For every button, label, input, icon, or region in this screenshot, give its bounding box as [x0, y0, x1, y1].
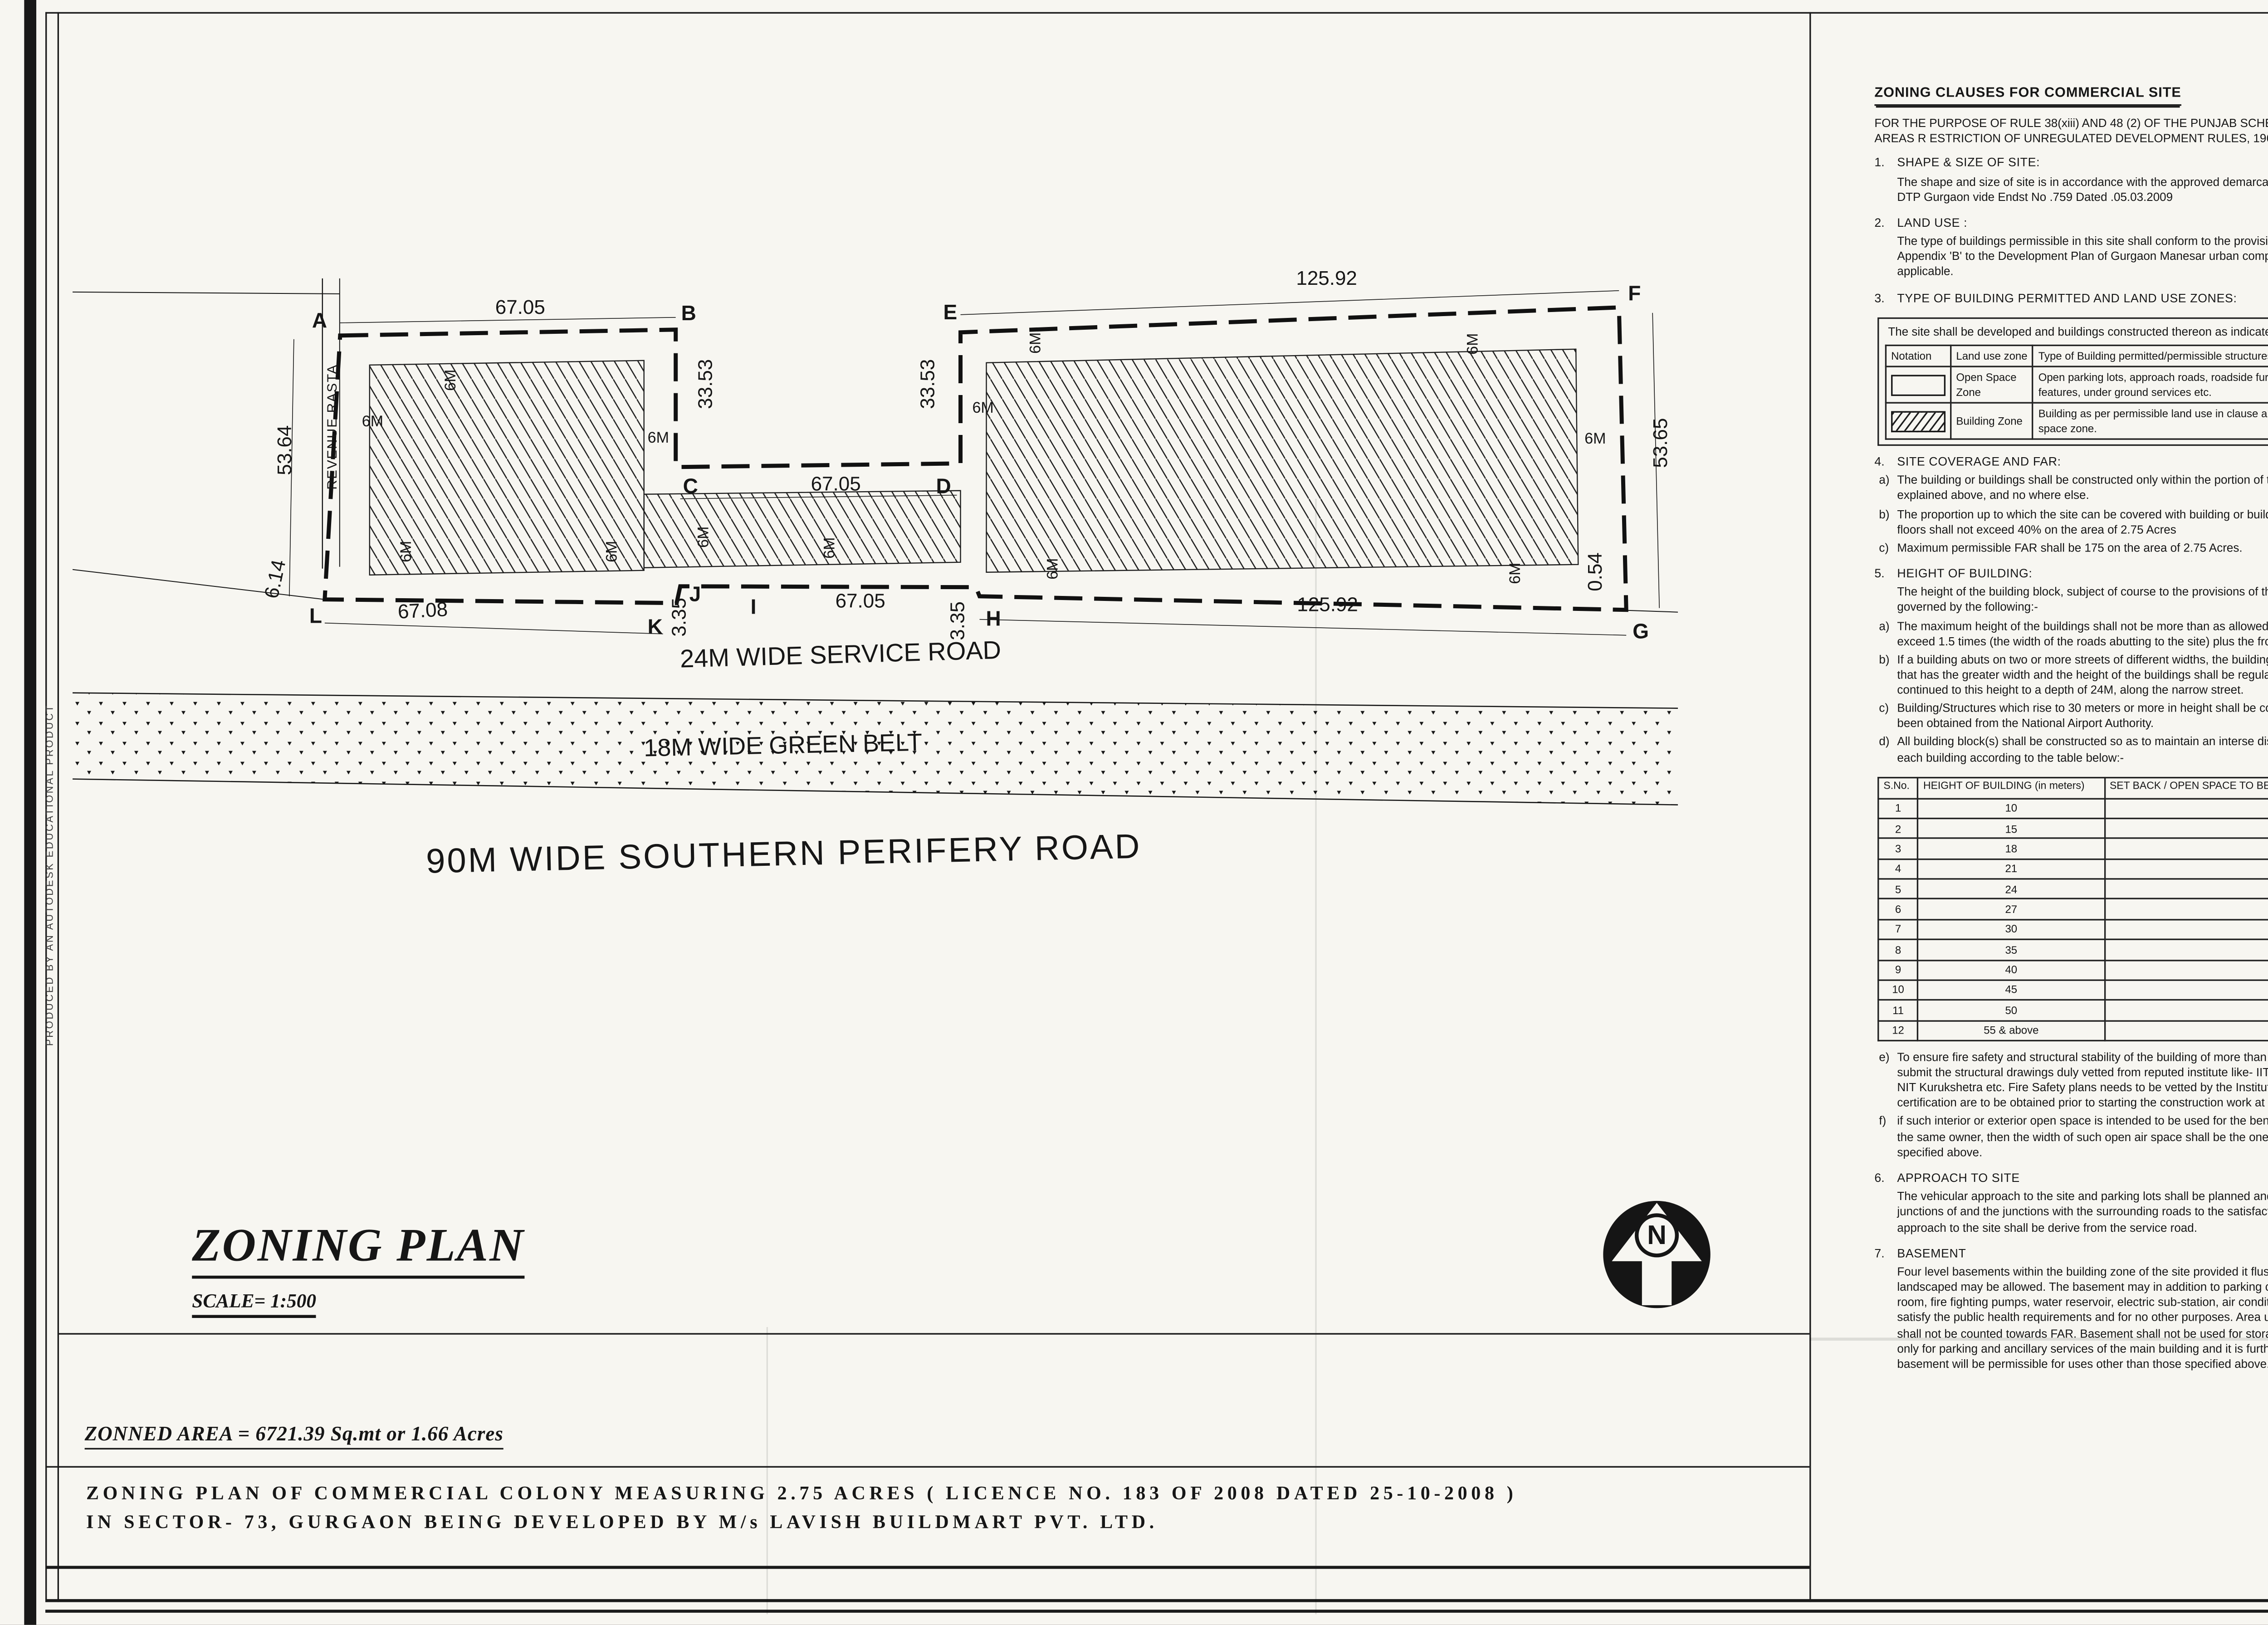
table-row: 73010: [1878, 919, 2268, 940]
table-row: 94012: [1878, 960, 2268, 980]
scan-edge-strip: [24, 0, 36, 1625]
divider-plan-clauses: [1809, 12, 1812, 1602]
clause-paragraph: c)Building/Structures which rise to 30 m…: [1874, 702, 2268, 732]
clause-paragraph-label: c): [1879, 541, 1889, 556]
clause-paragraph-text: Four level basements within the building…: [1897, 1265, 2268, 1370]
clause-paragraph-label: e): [1879, 1050, 1889, 1066]
table-row: 2155: [1878, 819, 2268, 839]
table-cell: 10: [1918, 798, 2104, 819]
service-road-label: 24M WIDE SERVICE ROAD: [679, 635, 1002, 673]
table-header-row: S.No.HEIGHT OF BUILDING (in meters)SET B…: [1878, 777, 2268, 799]
plan-setback-label: 6M: [973, 399, 994, 416]
clause-heading: 5.HEIGHT OF BUILDING:: [1874, 567, 2268, 583]
plan-corner-label-E: E: [943, 300, 958, 324]
table-cell: 8: [1878, 940, 1918, 960]
plan-dimension: 53.64: [274, 425, 296, 475]
north-letter: N: [1647, 1220, 1667, 1250]
building-zone-hatch-right: [987, 349, 1579, 572]
clause-title: HEIGHT OF BUILDING:: [1897, 567, 2032, 581]
table-cell: 6: [1878, 899, 1918, 920]
clause-paragraph: e)To ensure fire safety and structural s…: [1874, 1050, 2268, 1112]
plan-setback-label: 6M: [1584, 430, 1606, 447]
table-cell: 8: [2104, 879, 2268, 899]
clause-paragraph-text: Building/Structures which rise to 30 met…: [1897, 702, 2268, 731]
fold-crease: [767, 1327, 768, 1614]
table-header-row: NotationLand use zoneType of Building pe…: [1886, 346, 2268, 367]
table-cell: 9: [2104, 899, 2268, 920]
clause-paragraph-text: The proportion up to which the site can …: [1897, 507, 2268, 536]
clause-number: 2.: [1874, 216, 1884, 232]
table-cell: 3: [2104, 798, 2268, 819]
plan-corner-label-F: F: [1628, 281, 1641, 305]
plan-setback-label: 6M: [648, 429, 669, 446]
clause-paragraph-text: All building block(s) shall be construct…: [1897, 735, 2268, 764]
clause-paragraph: The type of buildings permissible in thi…: [1874, 234, 2268, 280]
plan-setback-label: 6M: [1044, 558, 1061, 580]
table-cell: 45: [1918, 980, 2104, 1000]
plan-dimension: 0.54: [1584, 552, 1606, 591]
plan-setback-label: 6M: [695, 527, 712, 548]
zoning-plan-sheet: PRODUCED BY AN AUTODESK EDUCATIONAL PROD…: [0, 0, 2268, 1625]
plan-corner-label-H: H: [986, 607, 1001, 630]
notation-swatch: [1891, 375, 1945, 396]
clause-paragraph: The height of the building block, subjec…: [1874, 586, 2268, 616]
table-row: 1103: [1878, 798, 2268, 819]
type-cell: Building as per permissible land use in …: [2033, 403, 2268, 439]
table-row: 6279: [1878, 899, 2268, 920]
table-row: Open Space ZoneOpen parking lots, approa…: [1886, 367, 2268, 403]
notation-swatch: [1891, 410, 1945, 432]
clause-title: SHAPE & SIZE OF SITE:: [1897, 156, 2040, 170]
clause-paragraph-text: To ensure fire safety and structural sta…: [1897, 1050, 2268, 1110]
plan-setback-label: 6M: [1506, 562, 1524, 584]
clause-number: 4.: [1874, 455, 1884, 471]
plan-dimension: 67.05: [495, 296, 545, 318]
clause-paragraph: b)The proportion up to which the site ca…: [1874, 507, 2268, 537]
land-use-box: The site shall be developed and building…: [1877, 317, 2268, 446]
plan-dimension: 33.53: [917, 359, 939, 409]
clause-paragraph-text: The height of the building block, subjec…: [1897, 586, 2268, 615]
plan-setback-label: 6M: [397, 541, 415, 562]
land-use-note: The site shall be developed and building…: [1888, 325, 2268, 341]
plan-corner-label-K: K: [648, 615, 663, 639]
table-cell: 21: [1918, 859, 2104, 879]
plan-dimension: 3.35: [668, 598, 690, 637]
clause-title: BASEMENT: [1897, 1246, 1966, 1260]
plan-setback-label: 6M: [603, 541, 621, 562]
table-cell: 9: [1878, 960, 1918, 980]
clause-heading: 2.LAND USE :: [1874, 216, 2268, 232]
clause-paragraph-label: b): [1879, 653, 1889, 668]
clause-paragraph-label: b): [1879, 507, 1889, 522]
table-cell: 55 & above: [1918, 1020, 2104, 1041]
table-cell: 2: [1878, 819, 1918, 839]
table-row: 83511: [1878, 940, 2268, 960]
border-top: [45, 12, 2268, 15]
table-cell: 4: [1878, 859, 1918, 879]
table-cell: 12: [2104, 960, 2268, 980]
clause-section: 1.SHAPE & SIZE OF SITE:The shape and siz…: [1874, 156, 2268, 205]
clause-paragraph: Four level basements within the building…: [1874, 1265, 2268, 1372]
table-cell: 35: [1918, 940, 2104, 960]
clause-paragraph: The shape and size of site is in accorda…: [1874, 175, 2268, 205]
column-header: HEIGHT OF BUILDING (in meters): [1918, 777, 2104, 799]
plan-corner-label-G: G: [1633, 620, 1649, 643]
sheet-subtitle-line1: ZONING PLAN OF COMMERCIAL COLONY MEASURI…: [86, 1483, 1779, 1505]
clause-paragraph-text: If a building abuts on two or more stree…: [1897, 653, 2268, 697]
plan-dimension: 67.05: [811, 473, 861, 495]
clause-paragraph: d)All building block(s) shall be constru…: [1874, 735, 2268, 766]
plan-dimension: 3.35: [947, 601, 969, 640]
plan-dimension: 53.65: [1649, 418, 1672, 468]
table-cell: 3: [1878, 839, 1918, 859]
table-cell: 40: [1918, 960, 2104, 980]
clause-paragraph-label: a): [1879, 473, 1889, 489]
clause-paragraph-text: The shape and size of site is in accorda…: [1897, 175, 2268, 204]
column-header: Land use zone: [1951, 346, 2033, 367]
clauses-column: ZONING CLAUSES FOR COMMERCIAL SITE FOR T…: [1874, 85, 2268, 1383]
clause-title: APPROACH TO SITE: [1897, 1171, 2019, 1185]
plan-dimension: 125.92: [1296, 267, 1357, 289]
building-zone-hatch-connector: [644, 491, 961, 568]
clause-heading: 1.SHAPE & SIZE OF SITE:: [1874, 156, 2268, 172]
clause-title: LAND USE :: [1897, 216, 1967, 229]
height-setback-table: S.No.HEIGHT OF BUILDING (in meters)SET B…: [1877, 776, 2268, 1041]
clause-paragraph-label: a): [1879, 619, 1889, 634]
plan-setback-label: 6M: [442, 370, 459, 391]
plan-setback-label: 6M: [1026, 332, 1044, 354]
plan-dimension: 67.05: [836, 590, 885, 612]
column-header: SET BACK / OPEN SPACE TO BE LEFT AROUND …: [2104, 777, 2268, 799]
plan-corner-label-A: A: [312, 308, 327, 332]
table-cell: 12: [1878, 1020, 1918, 1041]
clause-paragraph-text: Maximum permissible FAR shall be 175 on …: [1897, 541, 2242, 554]
north-arrow: N: [1599, 1197, 1714, 1312]
table-cell: 27: [1918, 899, 2104, 920]
table-row: 104513: [1878, 980, 2268, 1000]
table-cell: 18: [1918, 839, 2104, 859]
plan-corner-label-B: B: [681, 301, 696, 325]
clause-number: 3.: [1874, 291, 1884, 307]
plan-corner-label-L: L: [309, 604, 322, 628]
table-row: 4217: [1878, 859, 2268, 879]
type-cell: Open parking lots, approach roads, roads…: [2033, 367, 2268, 403]
table-cell: 10: [2104, 919, 2268, 940]
table-cell: 13: [2104, 980, 2268, 1000]
revenue-rasta-label: REVENUE RASTA: [325, 364, 340, 490]
height-table-wrap: S.No.HEIGHT OF BUILDING (in meters)SET B…: [1877, 776, 2268, 1041]
clause-paragraph-text: The maximum height of the buildings shal…: [1897, 619, 2268, 648]
clauses-title: ZONING CLAUSES FOR COMMERCIAL SITE: [1874, 85, 2181, 106]
clause-section: 6.APPROACH TO SITEThe vehicular approach…: [1874, 1171, 2268, 1236]
clause-paragraph: c)Maximum permissible FAR shall be 175 o…: [1874, 541, 2268, 556]
clause-section: 5.HEIGHT OF BUILDING:The height of the b…: [1874, 567, 2268, 766]
table-cell: 10: [1878, 980, 1918, 1000]
table-cell: 1: [1878, 798, 1918, 819]
titleblock-divider: [45, 1466, 1809, 1468]
table-cell: 5: [2104, 819, 2268, 839]
clause-paragraph-text: The vehicular approach to the site and p…: [1897, 1190, 2268, 1234]
table-row: 3186: [1878, 839, 2268, 859]
titleblock-divider: [59, 1333, 1809, 1335]
zone-cell: Building Zone: [1951, 403, 2033, 439]
column-header: Type of Building permitted/permissible s…: [2033, 346, 2268, 367]
plan-dimension: 33.53: [694, 359, 717, 409]
clause-title: SITE COVERAGE AND FAR:: [1897, 455, 2061, 468]
clause-title: TYPE OF BUILDING PERMITTED AND LAND USE …: [1897, 291, 2237, 305]
clause-paragraph: The vehicular approach to the site and p…: [1874, 1190, 2268, 1236]
land-use-table: NotationLand use zoneType of Building pe…: [1885, 345, 2268, 439]
clause-heading: 4.SITE COVERAGE AND FAR:: [1874, 455, 2268, 471]
table-cell: 24: [1918, 879, 2104, 899]
clause-paragraph-label: c): [1879, 702, 1889, 717]
plan-corner-label-J: J: [689, 582, 701, 606]
clause-paragraph-label: d): [1879, 735, 1889, 751]
notation-cell: [1886, 367, 1950, 403]
column-header: S.No.: [1878, 777, 1918, 799]
border-bottom-inner: [45, 1610, 2268, 1613]
table-cell: 50: [1918, 1000, 2104, 1020]
clause-paragraph: a)The maximum height of the buildings sh…: [1874, 619, 2268, 649]
site-plan-drawing: 24M WIDE SERVICE ROAD 18M WIDE GREEN BEL…: [73, 249, 1678, 930]
clause-paragraph: a)The building or buildings shall be con…: [1874, 473, 2268, 504]
plan-dimension: 6.14: [260, 558, 290, 600]
clause-number: 6.: [1874, 1171, 1884, 1187]
perifery-road-label: 90M WIDE SOUTHERN PERIFERY ROAD: [425, 827, 1142, 881]
clauses-intro: FOR THE PURPOSE OF RULE 38(xiii) AND 48 …: [1874, 116, 2268, 146]
table-cell: 11: [2104, 940, 2268, 960]
table-cell: 15: [1918, 819, 2104, 839]
plan-corner-label-C: C: [683, 474, 698, 498]
table-cell: 11: [1878, 1000, 1918, 1020]
plan-line: [73, 292, 340, 294]
table-cell: 14: [2104, 1000, 2268, 1020]
table-row: 5248: [1878, 879, 2268, 899]
plan-dimension: 125.92: [1297, 594, 1358, 616]
zone-cell: Open Space Zone: [1951, 367, 2033, 403]
clause-heading: 7.BASEMENT: [1874, 1246, 2268, 1262]
clause-paragraph-label: f): [1879, 1115, 1886, 1130]
column-header: Notation: [1886, 346, 1950, 367]
notation-cell: [1886, 403, 1950, 439]
border-left-inner: [58, 12, 59, 1602]
table-row: Building ZoneBuilding as per permissible…: [1886, 403, 2268, 439]
plan-corner-label-I: I: [751, 595, 757, 619]
titleblock-bottom-rule: [45, 1566, 1809, 1569]
plan-setback-label: 6M: [362, 413, 383, 430]
autodesk-edge-note: PRODUCED BY AN AUTODESK EDUCATIONAL PROD…: [45, 704, 56, 1046]
clause-paragraph-text: The building or buildings shall be const…: [1897, 473, 2268, 503]
border-bottom-outer: [45, 1599, 2268, 1601]
clause-number: 5.: [1874, 567, 1884, 583]
clause-paragraph-text: The type of buildings permissible in thi…: [1897, 234, 2268, 278]
clause-heading: 6.APPROACH TO SITE: [1874, 1171, 2268, 1187]
plan-dimension: 67.08: [397, 598, 448, 623]
table-cell: 16: [2104, 1020, 2268, 1041]
clause-section: 7.BASEMENTFour level basements within th…: [1874, 1246, 2268, 1372]
table-cell: 30: [1918, 919, 2104, 940]
clause-section: 4.SITE COVERAGE AND FAR:a)The building o…: [1874, 455, 2268, 556]
table-row: 115014: [1878, 1000, 2268, 1020]
clause-section: 2.LAND USE :The type of buildings permis…: [1874, 216, 2268, 281]
table-cell: 6: [2104, 839, 2268, 859]
sheet-subtitle-line2: IN SECTOR- 73, GURGAON BEING DEVELOPED B…: [86, 1512, 1779, 1534]
plan-corner-label-D: D: [936, 474, 951, 498]
clause-section: 3.TYPE OF BUILDING PERMITTED AND LAND US…: [1874, 291, 2268, 307]
table-cell: 7: [2104, 859, 2268, 879]
clause-paragraph-text: if such interior or exterior open space …: [1897, 1115, 2268, 1159]
plan-title: ZONING PLAN: [192, 1218, 525, 1279]
clauses-flow: FOR THE PURPOSE OF RULE 38(xiii) AND 48 …: [1874, 116, 2268, 1372]
zonned-area: ZONNED AREA = 6721.39 Sq.mt or 1.66 Acre…: [85, 1422, 503, 1449]
plan-setback-label: 6M: [1464, 333, 1481, 355]
table-row: 1255 & above16: [1878, 1020, 2268, 1041]
table-cell: 7: [1878, 919, 1918, 940]
clause-section: e)To ensure fire safety and structural s…: [1874, 1050, 2268, 1161]
scanned-sheet-stage: PRODUCED BY AN AUTODESK EDUCATIONAL PROD…: [0, 0, 2268, 1625]
service-road-edge: [1626, 610, 1678, 612]
clause-number: 7.: [1874, 1246, 1884, 1262]
clause-number: 1.: [1874, 156, 1884, 172]
plan-setback-label: 6M: [821, 537, 838, 559]
clause-heading: 3.TYPE OF BUILDING PERMITTED AND LAND US…: [1874, 291, 2268, 307]
clause-paragraph: f)if such interior or exterior open spac…: [1874, 1115, 2268, 1161]
clause-paragraph: b)If a building abuts on two or more str…: [1874, 653, 2268, 698]
table-cell: 5: [1878, 879, 1918, 899]
plan-scale: SCALE= 1:500: [192, 1289, 316, 1318]
green-belt-label: 18M WIDE GREEN BELT: [644, 729, 923, 762]
